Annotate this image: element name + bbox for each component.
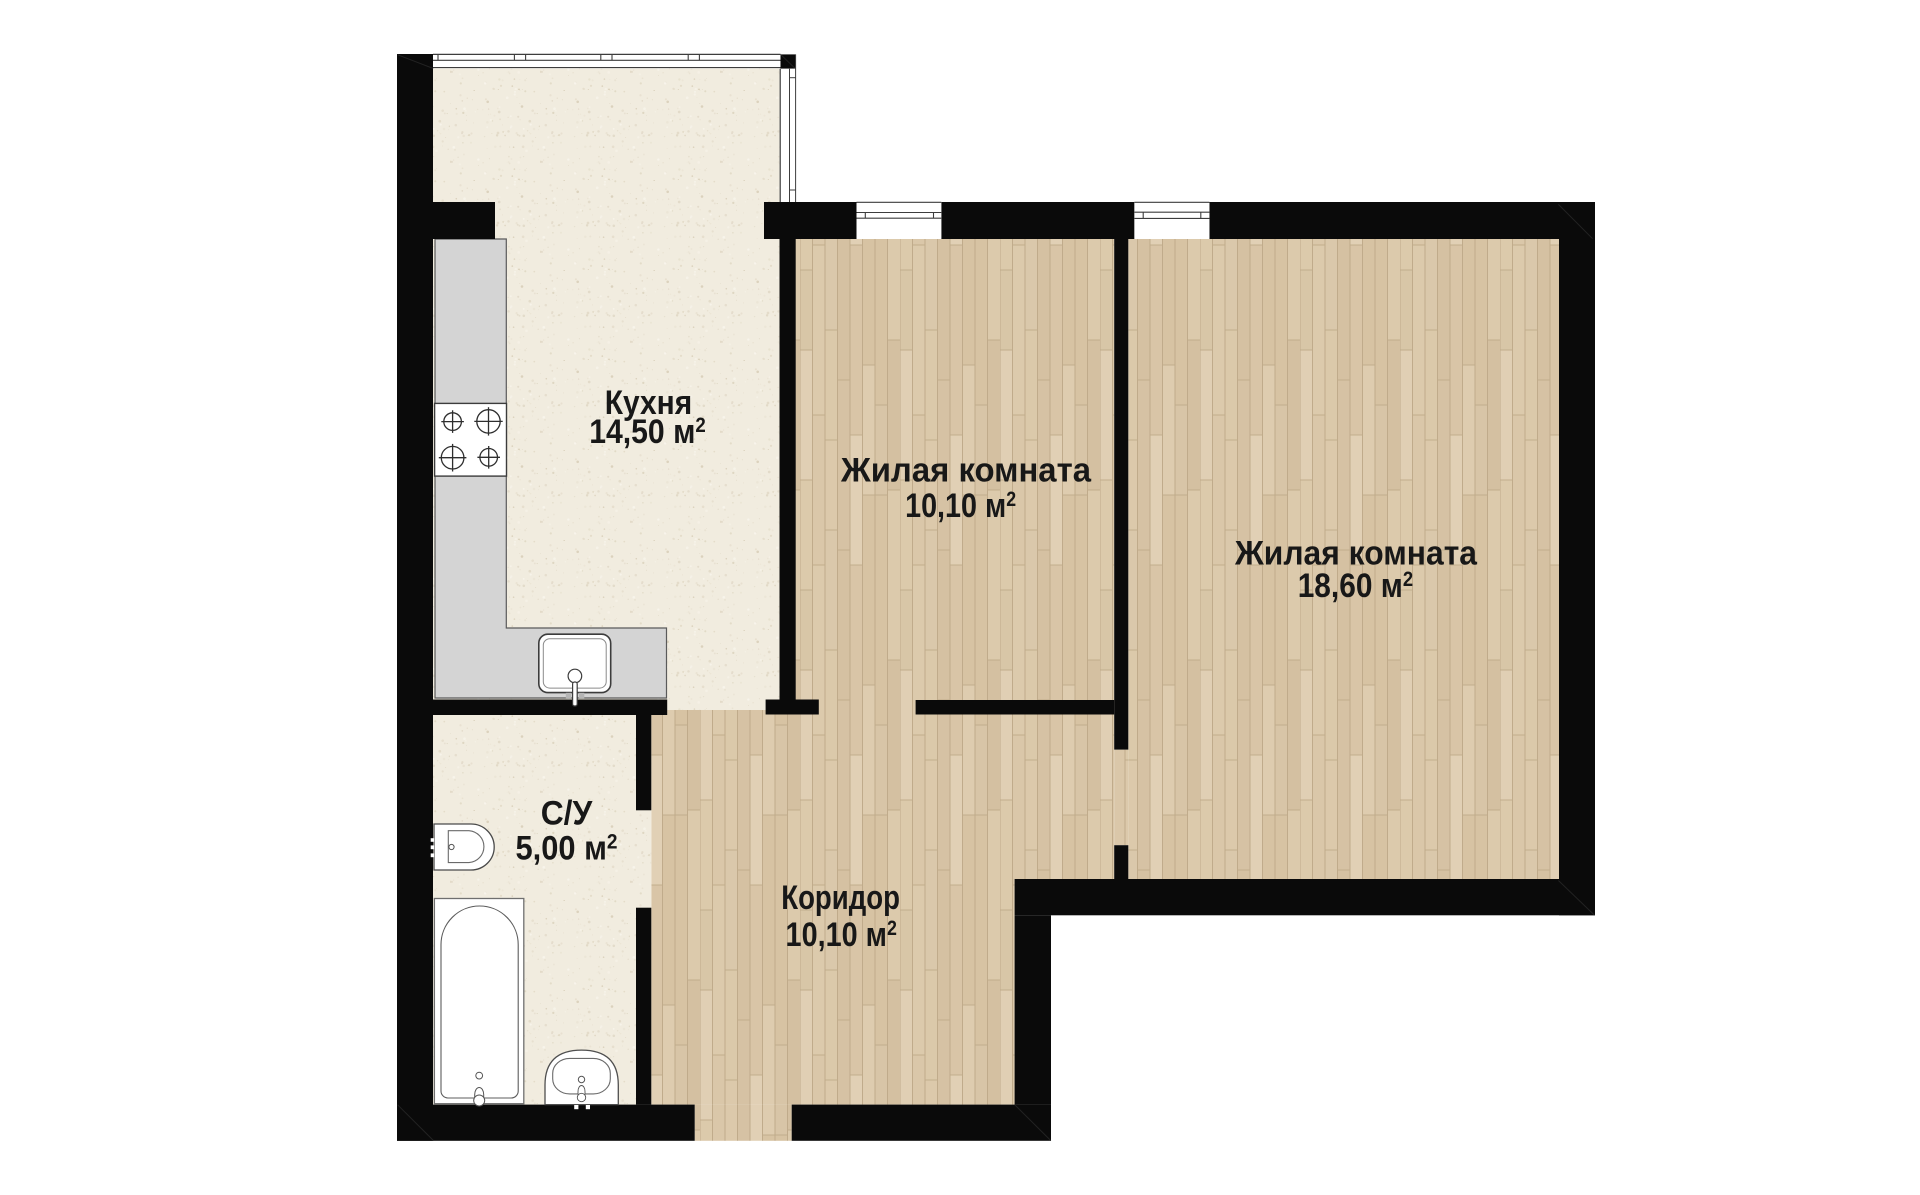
svg-text:10,10 м2: 10,10 м2 bbox=[786, 916, 897, 954]
svg-text:18,60 м2: 18,60 м2 bbox=[1298, 567, 1413, 605]
svg-text:5,00 м2: 5,00 м2 bbox=[516, 830, 618, 868]
svg-text:С/У: С/У bbox=[541, 794, 593, 832]
svg-text:Коридор: Коридор bbox=[781, 879, 900, 917]
svg-text:10,10 м2: 10,10 м2 bbox=[905, 487, 1016, 525]
svg-text:14,50 м2: 14,50 м2 bbox=[589, 413, 706, 451]
svg-text:Жилая комната: Жилая комната bbox=[840, 452, 1092, 490]
